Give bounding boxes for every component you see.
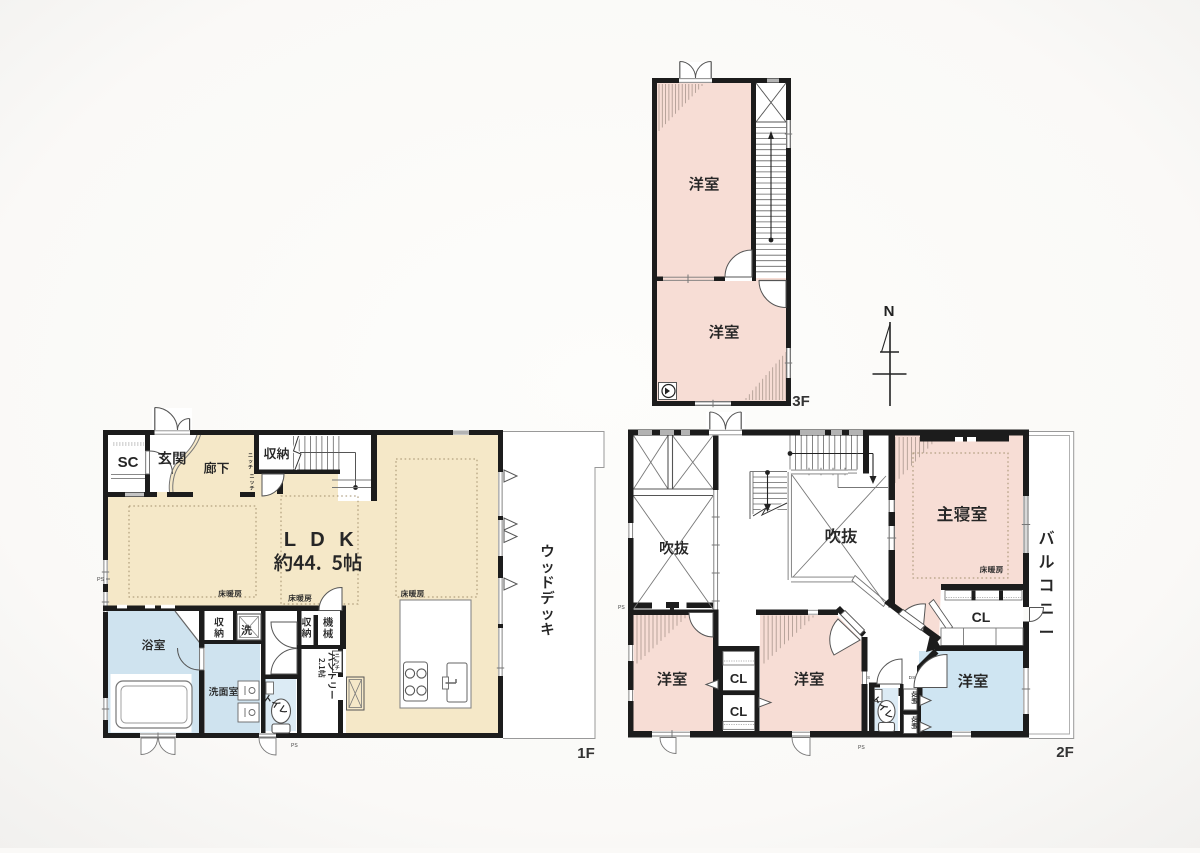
svg-text:L D K: L D K <box>284 529 358 551</box>
svg-text:2F: 2F <box>1056 744 1074 761</box>
svg-text:PS: PS <box>858 745 865 751</box>
svg-text:CL: CL <box>730 671 747 686</box>
svg-text:CL: CL <box>972 609 991 625</box>
svg-text:PS: PS <box>618 605 625 611</box>
svg-text:1F: 1F <box>577 745 595 762</box>
svg-text:PS: PS <box>291 743 298 749</box>
svg-text:CL: CL <box>730 704 747 719</box>
svg-text:N: N <box>884 303 895 320</box>
svg-text:3F: 3F <box>792 393 810 410</box>
svg-text:SC: SC <box>118 454 139 471</box>
svg-text:PS: PS <box>97 577 105 583</box>
svg-text:DS: DS <box>909 675 916 681</box>
